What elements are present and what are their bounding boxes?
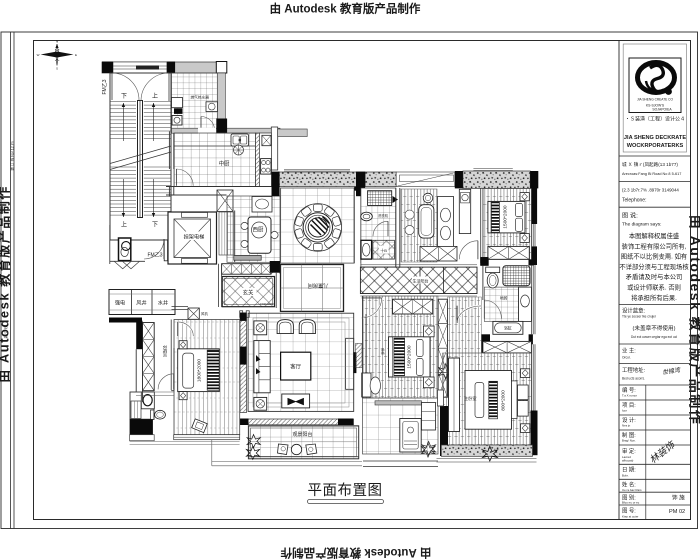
- svg-text:Brag! Non.: Brag! Non.: [622, 439, 636, 443]
- svg-text:矛盾请及时与本公司: 矛盾请及时与本公司: [626, 272, 683, 281]
- svg-text:或设计师联系. 否则: 或设计师联系. 否则: [627, 283, 681, 292]
- svg-text:水井: 水井: [158, 299, 168, 307]
- svg-text:十B: 十B: [380, 247, 387, 253]
- svg-text:W: W: [37, 53, 40, 57]
- svg-text:平面布置图: 平面布置图: [308, 482, 383, 499]
- svg-text:・Ｓ装潢〔工程〕设计公４: ・Ｓ装潢〔工程〕设计公４: [625, 116, 685, 123]
- svg-text:Arecroas:Fang Bi Road No 8 5-6: Arecroas:Fang Bi Road No 8 5-617: [622, 172, 681, 176]
- svg-text:Orcur.: Orcur.: [622, 356, 631, 360]
- svg-text:主卧室: 主卧室: [464, 395, 477, 402]
- svg-text:由 Autodesk 教育版产品制作: 由 Autodesk 教育版产品制作: [688, 215, 700, 426]
- svg-text:Ktep at cuter: Ktep at cuter: [622, 515, 638, 519]
- svg-text:衣帽间: 衣帽间: [163, 345, 169, 357]
- svg-text:日 期:: 日 期:: [622, 467, 636, 474]
- svg-text:上: 上: [121, 221, 127, 229]
- svg-text:Bed ucts acorrs.: Bed ucts acorrs.: [622, 377, 645, 381]
- svg-text:城 Ｘ 镇ｒ(凤起路(13 1b77): 城 Ｘ 镇ｒ(凤起路(13 1b77): [622, 161, 678, 168]
- svg-text:装 订 线 Nor.12.lm: 装 订 线 Nor.12.lm: [10, 141, 15, 170]
- svg-text:玄关: 玄关: [243, 289, 254, 297]
- svg-text:T.a X rumor: T.a X rumor: [622, 394, 637, 398]
- svg-text:Nes jn: Nes jn: [622, 424, 631, 428]
- svg-text:Iuor: Iuor: [622, 409, 627, 413]
- svg-text:S: S: [56, 67, 58, 71]
- svg-text:上: 上: [152, 92, 158, 100]
- svg-text:本图解释权属佳盛: 本图解释权属佳盛: [629, 231, 679, 240]
- svg-text:担架电梯: 担架电梯: [184, 233, 205, 241]
- svg-text:JIA SHENG CREATE CO: JIA SHENG CREATE CO: [637, 98, 673, 102]
- svg-text:1500*2000: 1500*2000: [503, 205, 509, 229]
- svg-text:饰 施: 饰 施: [672, 494, 685, 502]
- svg-text:审 定:: 审 定:: [622, 447, 636, 455]
- svg-text:SOJAPOIEA: SOJAPOIEA: [652, 108, 672, 112]
- svg-text:风机: 风机: [201, 311, 208, 316]
- svg-text:下: 下: [152, 222, 158, 229]
- svg-text:affrcuat(r: affrcuat(r: [622, 459, 634, 463]
- svg-text:PM 02: PM 02: [669, 509, 685, 515]
- svg-text:FM乙3: FM乙3: [101, 79, 108, 94]
- svg-text:由 Autodesk 教育版产品制作: 由 Autodesk 教育版产品制作: [270, 2, 421, 16]
- svg-text:1800*2000: 1800*2000: [197, 359, 203, 383]
- svg-text:中厨: 中厨: [219, 160, 230, 168]
- svg-text:E: E: [75, 53, 77, 57]
- svg-text:地砖: 地砖: [500, 296, 508, 301]
- svg-text:书桌: 书桌: [381, 348, 386, 355]
- svg-text:装 订 线: 装 订 线: [3, 325, 8, 338]
- svg-text:浴缸: 浴缸: [504, 325, 512, 331]
- svg-text:将承担所有后果.: 将承担所有后果.: [631, 293, 677, 302]
- svg-text:Dut eot uower cegtar ega: Dut eot uower cegtar ega eot ucl: [631, 335, 677, 339]
- svg-text:观景阳台: 观景阳台: [292, 431, 312, 438]
- svg-text:燃气热水器: 燃气热水器: [191, 95, 210, 100]
- svg-text:工程地址:: 工程地址:: [622, 366, 645, 374]
- svg-text:图纸不以比例叏甭. 如有: 图纸不以比例叏甭. 如有: [621, 252, 687, 261]
- svg-text:Telephone:: Telephone:: [622, 198, 646, 204]
- svg-text:JIA SHENG DECKRATE: JIA SHENG DECKRATE: [624, 135, 686, 141]
- svg-text:设计蓝章:: 设计蓝章:: [622, 307, 645, 315]
- svg-text:风井: 风井: [136, 299, 146, 307]
- svg-text:1500x2870: 1500x2870: [260, 302, 274, 306]
- svg-text:Bu!e.: Bu!e.: [622, 474, 629, 478]
- svg-text:FM乙3: FM乙3: [147, 252, 162, 259]
- svg-text:西厨: 西厨: [253, 227, 264, 234]
- svg-text:下: 下: [121, 93, 127, 100]
- svg-text:不详部分须与工程现场核: 不详部分须与工程现场核: [619, 262, 689, 271]
- svg-text:1500*2000: 1500*2000: [407, 345, 413, 369]
- svg-text:儿童房间: 儿童房间: [308, 282, 329, 290]
- svg-text:(2.3 1b7r.7% .8970r 3149044: (2.3 1b7r.7% .8970r 3149044: [622, 188, 679, 193]
- svg-text:装饰工程有限公司所有,: 装饰工程有限公司所有,: [622, 241, 687, 250]
- svg-text:客厅: 客厅: [290, 363, 301, 371]
- svg-text:Ue ra Aac Rars: Ue ra Aac Rars: [622, 488, 642, 492]
- svg-text:The diagram says:: The diagram says:: [622, 222, 661, 228]
- svg-text:图 号:: 图 号:: [622, 507, 636, 515]
- svg-text:800*2000: 800*2000: [501, 390, 507, 411]
- svg-text:洗衣机: 洗衣机: [378, 213, 389, 218]
- svg-text:业 主:: 业 主:: [622, 347, 636, 355]
- svg-text:(未盖章不得使用): (未盖章不得使用): [633, 324, 676, 332]
- svg-text:由 Autodesk 教育版产品制作: 由 Autodesk 教育版产品制作: [0, 185, 12, 382]
- svg-text:由 Autodesk 教育版产品制作: 由 Autodesk 教育版产品制作: [280, 546, 431, 560]
- svg-text:Tte ye soceer tke cnujer: Tte ye soceer tke cnujer: [622, 315, 657, 319]
- svg-text:生活阳台: 生活阳台: [413, 277, 429, 283]
- svg-text:强电: 强电: [115, 299, 125, 307]
- svg-text:Bfcu rrc or ec: Bfcu rrc or ec: [622, 501, 640, 505]
- svg-text:图 说:: 图 说:: [622, 212, 638, 220]
- svg-text:WOCKRPORATERKS: WOCKRPORATERKS: [627, 143, 684, 149]
